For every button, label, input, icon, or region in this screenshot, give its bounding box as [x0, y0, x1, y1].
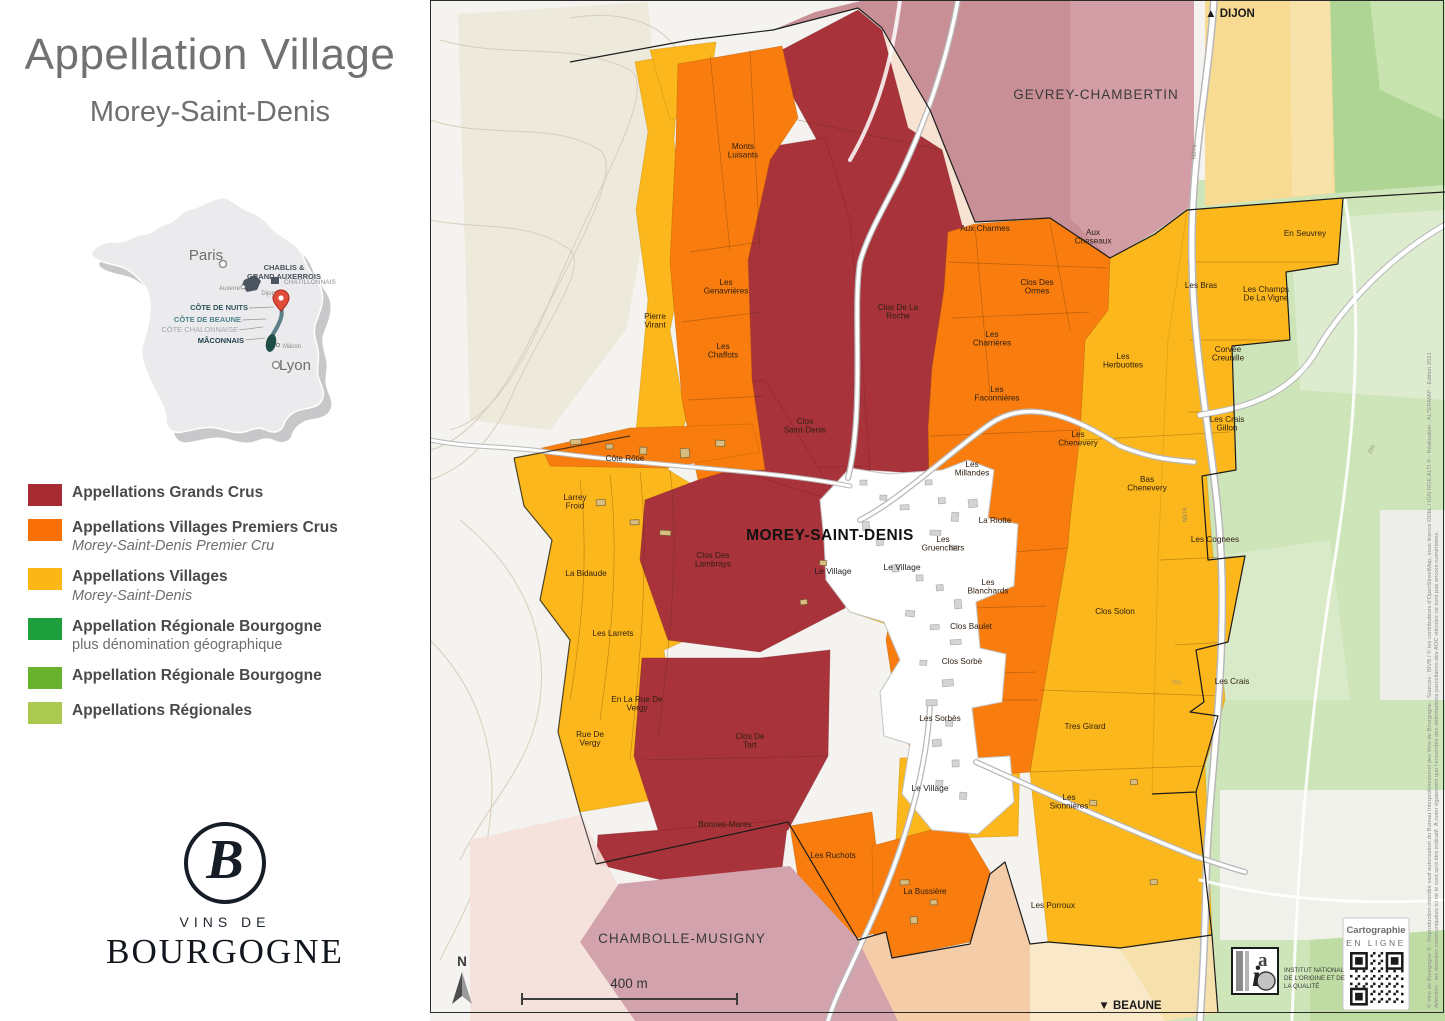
building — [905, 610, 915, 617]
parcel-label-pierre-virant: PierreVirant — [644, 312, 666, 330]
legend-text: Appellations Villages Premiers CrusMorey… — [72, 519, 338, 555]
parcel-label-la-bussi-re: La Bussière — [903, 887, 947, 896]
logo-line-bourgogne: BOURGOGNE — [0, 932, 450, 972]
qr-module — [1373, 960, 1376, 963]
parcel-label-les-ruchots: Les Ruchots — [810, 851, 856, 860]
qr-module — [1378, 993, 1381, 996]
qr-module — [1396, 990, 1399, 993]
farm-building — [1150, 879, 1157, 885]
farm-building — [596, 499, 605, 506]
legend-label: Appellations Villages Premiers Crus — [72, 519, 338, 537]
inao-logo-a: a — [1258, 950, 1268, 971]
village-label: Le Village — [814, 566, 851, 576]
qr-module — [1393, 993, 1396, 996]
qr-module — [1401, 985, 1404, 988]
cartographie-label-1: Cartographie — [1346, 925, 1405, 936]
road-label: N974 — [1192, 144, 1199, 159]
building — [954, 599, 962, 609]
legend-sublabel: Morey-Saint-Denis Premier Cru — [72, 537, 338, 555]
qr-module — [1370, 970, 1373, 973]
inao-name-line: LA QUALITÉ — [1284, 983, 1319, 990]
parcel-label-rue-de-vergy: Rue DeVergy — [576, 730, 604, 748]
commune-label-gevrey-chambertin: GEVREY-CHAMBERTIN — [1013, 87, 1179, 102]
parcel-label-les-champs-de-la-vigne: Les ChampsDe La Vigne — [1243, 285, 1289, 303]
building — [951, 512, 959, 522]
qr-module — [1358, 983, 1361, 986]
pin-center — [278, 295, 283, 300]
parcel-label-tres-girard: Tres Girard — [1064, 722, 1106, 731]
poster: Appellation Village Morey-Saint-Denis — [0, 0, 1445, 1021]
qr-module — [1370, 985, 1373, 988]
qr-module — [1373, 975, 1376, 978]
qr-module — [1355, 985, 1358, 988]
vineyard-map-svg: 400 m N Cartographie EN LIGNE i a INSTIT… — [430, 0, 1445, 1021]
legend-sublabel: plus dénomination géographique — [72, 636, 322, 654]
qr-module — [1396, 975, 1399, 978]
qr-module — [1381, 990, 1384, 993]
parcel-label-la-riotte: La Riotte — [979, 516, 1012, 525]
farm-building — [819, 560, 827, 566]
parcel-label-les-porroux: Les Porroux — [1031, 901, 1075, 910]
building — [930, 624, 939, 630]
qr-module — [1386, 978, 1389, 981]
france-label-cote-de-nuits: CÔTE DE NUITS — [190, 303, 248, 312]
parcel-label-les-larrets: Les Larrets — [593, 629, 634, 638]
map-legend: Appellations Grands CrusAppellations Vil… — [28, 484, 418, 737]
qr-module — [1401, 970, 1404, 973]
qr-module — [1386, 985, 1389, 988]
france-label-macon: Mâcon — [283, 344, 301, 350]
farm-building — [680, 448, 690, 458]
qr-module — [1381, 975, 1384, 978]
parcel-label-clos-baulet: Clos Baulet — [950, 622, 993, 631]
auxerre-dot — [241, 285, 245, 289]
parcel-label-les-bras: Les Bras — [1185, 281, 1217, 290]
vineyard-map: 400 m N Cartographie EN LIGNE i a INSTIT… — [430, 0, 1445, 1021]
inao-name-line: INSTITUT NATIONAL — [1284, 967, 1344, 974]
commune-label-morey-saint-denis: MOREY-SAINT-DENIS — [746, 527, 914, 544]
qr-module — [1388, 998, 1391, 1001]
legend-item-0: Appellations Grands Crus — [28, 484, 418, 506]
qr-module — [1363, 985, 1366, 988]
nav-label-beaune: ▼ BEAUNE — [1098, 1000, 1161, 1012]
qr-module — [1396, 983, 1399, 986]
map-credit-text: Attention : les données communiquées ici… — [1433, 531, 1440, 1008]
parcel-label-clos-solon: Clos Solon — [1095, 607, 1135, 616]
farm-building — [1089, 800, 1097, 806]
legend-text: Appellations VillagesMorey-Saint-Denis — [72, 568, 228, 604]
building — [920, 660, 927, 665]
qr-module — [1378, 985, 1381, 988]
qr-module — [1381, 967, 1384, 970]
qr-module — [1393, 1000, 1396, 1003]
qr-module — [1358, 975, 1361, 978]
qr-module — [1393, 985, 1396, 988]
qr-module — [1355, 978, 1358, 981]
france-label-cote-de-beaune: CÔTE DE BEAUNE — [174, 315, 241, 324]
building — [932, 739, 942, 747]
vins-de-bourgogne-logo: B VINS DE BOURGOGNE — [0, 822, 450, 972]
farm-building — [1130, 779, 1138, 785]
farm-building — [900, 880, 909, 885]
qr-module — [1401, 1000, 1404, 1003]
building — [959, 792, 967, 800]
qr-module — [1393, 970, 1396, 973]
building — [926, 700, 937, 706]
france-locator-map: Paris Lyon Auxerre Dijon Mâcon CHABLIS &… — [68, 180, 368, 480]
legend-text: Appellations Régionales — [72, 702, 252, 720]
legend-item-1: Appellations Villages Premiers CrusMorey… — [28, 519, 418, 555]
legend-swatch — [28, 618, 62, 640]
parcel-label-clos-des-lambrays: Clos DesLambrays — [695, 551, 731, 569]
farm-building — [716, 440, 725, 447]
parcel-label-les-cognees: Les Cognees — [1191, 535, 1239, 544]
legend-text: Appellations Grands Crus — [72, 484, 263, 502]
macon-dot — [276, 343, 279, 346]
farm-building — [606, 444, 613, 449]
parcel-label-aux-charmes: Aux Charmes — [960, 224, 1010, 233]
inao-name-line: DE L'ORIGINE ET DE — [1284, 975, 1345, 982]
qr-module — [1373, 952, 1376, 955]
parcel-label-clos-des-ormes: Clos DesOrmes — [1020, 278, 1053, 296]
building — [860, 480, 867, 485]
qr-module — [1396, 998, 1399, 1001]
qr-module — [1401, 993, 1404, 996]
parcel-label-corv-e-creunille: CorvéeCreunille — [1212, 345, 1245, 363]
qr-module — [1381, 998, 1384, 1001]
legend-label: Appellations Régionales — [72, 702, 252, 720]
qr-module — [1350, 983, 1353, 986]
northeast-cream-light — [1290, 0, 1333, 196]
farm-building — [660, 530, 671, 536]
legend-label: Appellation Régionale Bourgogne — [72, 667, 322, 685]
building — [925, 480, 932, 485]
building — [938, 497, 945, 504]
france-label-auxerre: Auxerre — [219, 286, 241, 292]
road-label: N974 — [1183, 507, 1189, 522]
qr-module — [1370, 978, 1373, 981]
legend-swatch — [28, 568, 62, 590]
parcel-label-clos-sorb: Clos Sorbè — [942, 657, 983, 666]
qr-module — [1370, 1000, 1373, 1003]
built-area — [1220, 790, 1445, 940]
north-letter: N — [457, 954, 467, 969]
qr-module — [1365, 983, 1368, 986]
logo-monogram: B — [206, 832, 243, 888]
legend-text: Appellation Régionale Bourgogne — [72, 667, 322, 685]
logo-b-circle: B — [184, 822, 266, 904]
building — [950, 639, 961, 645]
france-label-maconnais: MÂCONNAIS — [198, 336, 244, 345]
qr-module — [1355, 970, 1358, 973]
building — [968, 499, 978, 508]
qr-module — [1378, 978, 1381, 981]
france-label-chatillonnais: CHÂTILLONNAIS — [284, 277, 336, 286]
qr-module — [1381, 952, 1384, 955]
nav-label-dijon: ▲ DIJON — [1205, 8, 1255, 20]
page-title: Appellation Village — [0, 30, 420, 80]
page-subtitle: Morey-Saint-Denis — [0, 96, 420, 129]
inao-logo-bar — [1236, 951, 1243, 991]
parcel-label-bonnes-mares: Bonnes-Mares — [698, 820, 751, 829]
qr-module — [1388, 983, 1391, 986]
qr-module — [1370, 962, 1373, 965]
building — [942, 679, 954, 687]
parcel-label-les-sorb-s: Les Sorbès — [919, 714, 960, 723]
contour-label: 250 — [1171, 679, 1181, 686]
france-map-svg: Paris Lyon Auxerre Dijon Mâcon CHABLIS &… — [68, 180, 368, 480]
legend-item-3: Appellation Régionale Bourgogneplus déno… — [28, 618, 418, 654]
farm-building — [570, 439, 581, 445]
qr-module — [1381, 960, 1384, 963]
qr-module — [1388, 990, 1391, 993]
parcel-label-c-te-r-tie: Côte Rôtie — [606, 454, 645, 463]
legend-swatch — [28, 667, 62, 689]
qr-module — [1373, 998, 1376, 1001]
parcel-label-larrey-froid: LarreyFroid — [563, 493, 587, 511]
qr-module — [1363, 978, 1366, 981]
logo-line-vins-de: VINS DE — [0, 914, 450, 930]
farm-building — [630, 520, 639, 525]
legend-sublabel: Morey-Saint-Denis — [72, 587, 228, 605]
qr-module — [1386, 970, 1389, 973]
legend-label: Appellations Grands Crus — [72, 484, 263, 502]
side-panel: Appellation Village Morey-Saint-Denis — [0, 0, 430, 1021]
legend-item-2: Appellations VillagesMorey-Saint-Denis — [28, 568, 418, 604]
qr-module — [1373, 990, 1376, 993]
farm-building — [930, 900, 937, 905]
qr-module — [1370, 993, 1373, 996]
farm-building — [910, 916, 918, 924]
france-label-cote-chalonnaise: CÔTE CHALONNAISE — [161, 325, 238, 334]
qr-module — [1388, 975, 1391, 978]
qr-module — [1378, 1000, 1381, 1003]
legend-swatch — [28, 702, 62, 724]
cartographie-box: Cartographie EN LIGNE — [1343, 918, 1409, 1010]
qr-module — [1393, 978, 1396, 981]
legend-item-5: Appellations Régionales — [28, 702, 418, 724]
qr-module — [1373, 983, 1376, 986]
building — [936, 584, 943, 591]
qr-module — [1355, 993, 1363, 1001]
qr-module — [1373, 967, 1376, 970]
parcel-label-les-crais: Les Crais — [1215, 677, 1250, 686]
legend-swatch — [28, 519, 62, 541]
building — [880, 495, 887, 500]
scale-label: 400 m — [610, 976, 648, 991]
farm-building — [800, 599, 808, 605]
qr-module — [1378, 955, 1381, 958]
legend-label: Appellations Villages — [72, 568, 228, 586]
france-label-lyon: Lyon — [279, 357, 311, 374]
village-label: Le Village — [883, 562, 920, 572]
building — [952, 760, 959, 767]
inao-logo-bar — [1245, 951, 1249, 991]
france-label-chablis-1: CHABLIS & — [264, 263, 305, 272]
parcel-label-en-seuvrey: En Seuvrey — [1284, 229, 1327, 238]
qr-module — [1401, 978, 1404, 981]
map-credit-text: © Vins de Bourgogne ® - Reproduction int… — [1426, 352, 1433, 1008]
qr-module — [1386, 1000, 1389, 1003]
qr-module — [1381, 983, 1384, 986]
legend-swatch — [28, 484, 62, 506]
parcel-label-monts-luisants: MontsLuisants — [728, 142, 759, 160]
france-label-dijon: Dijon — [261, 291, 275, 297]
qr-module — [1378, 970, 1381, 973]
building — [916, 575, 923, 581]
qr-module — [1391, 957, 1399, 965]
commune-label-chambolle-musigny: CHAMBOLLE-MUSIGNY — [598, 931, 766, 946]
qr-module — [1378, 962, 1381, 965]
legend-text: Appellation Régionale Bourgogneplus déno… — [72, 618, 322, 654]
village-label: Le Village — [911, 783, 948, 793]
france-label-paris: Paris — [189, 247, 223, 264]
cartographie-label-2: EN LIGNE — [1346, 938, 1406, 948]
legend-item-4: Appellation Régionale Bourgogne — [28, 667, 418, 689]
qr-module — [1386, 993, 1389, 996]
qr-module — [1355, 957, 1363, 965]
legend-label: Appellation Régionale Bourgogne — [72, 618, 322, 636]
qr-module — [1350, 975, 1353, 978]
qr-module — [1365, 975, 1368, 978]
qr-module — [1370, 955, 1373, 958]
building — [900, 505, 909, 510]
parcel-label-la-bidaude: La Bidaude — [565, 569, 607, 578]
qr-module — [1363, 970, 1366, 973]
